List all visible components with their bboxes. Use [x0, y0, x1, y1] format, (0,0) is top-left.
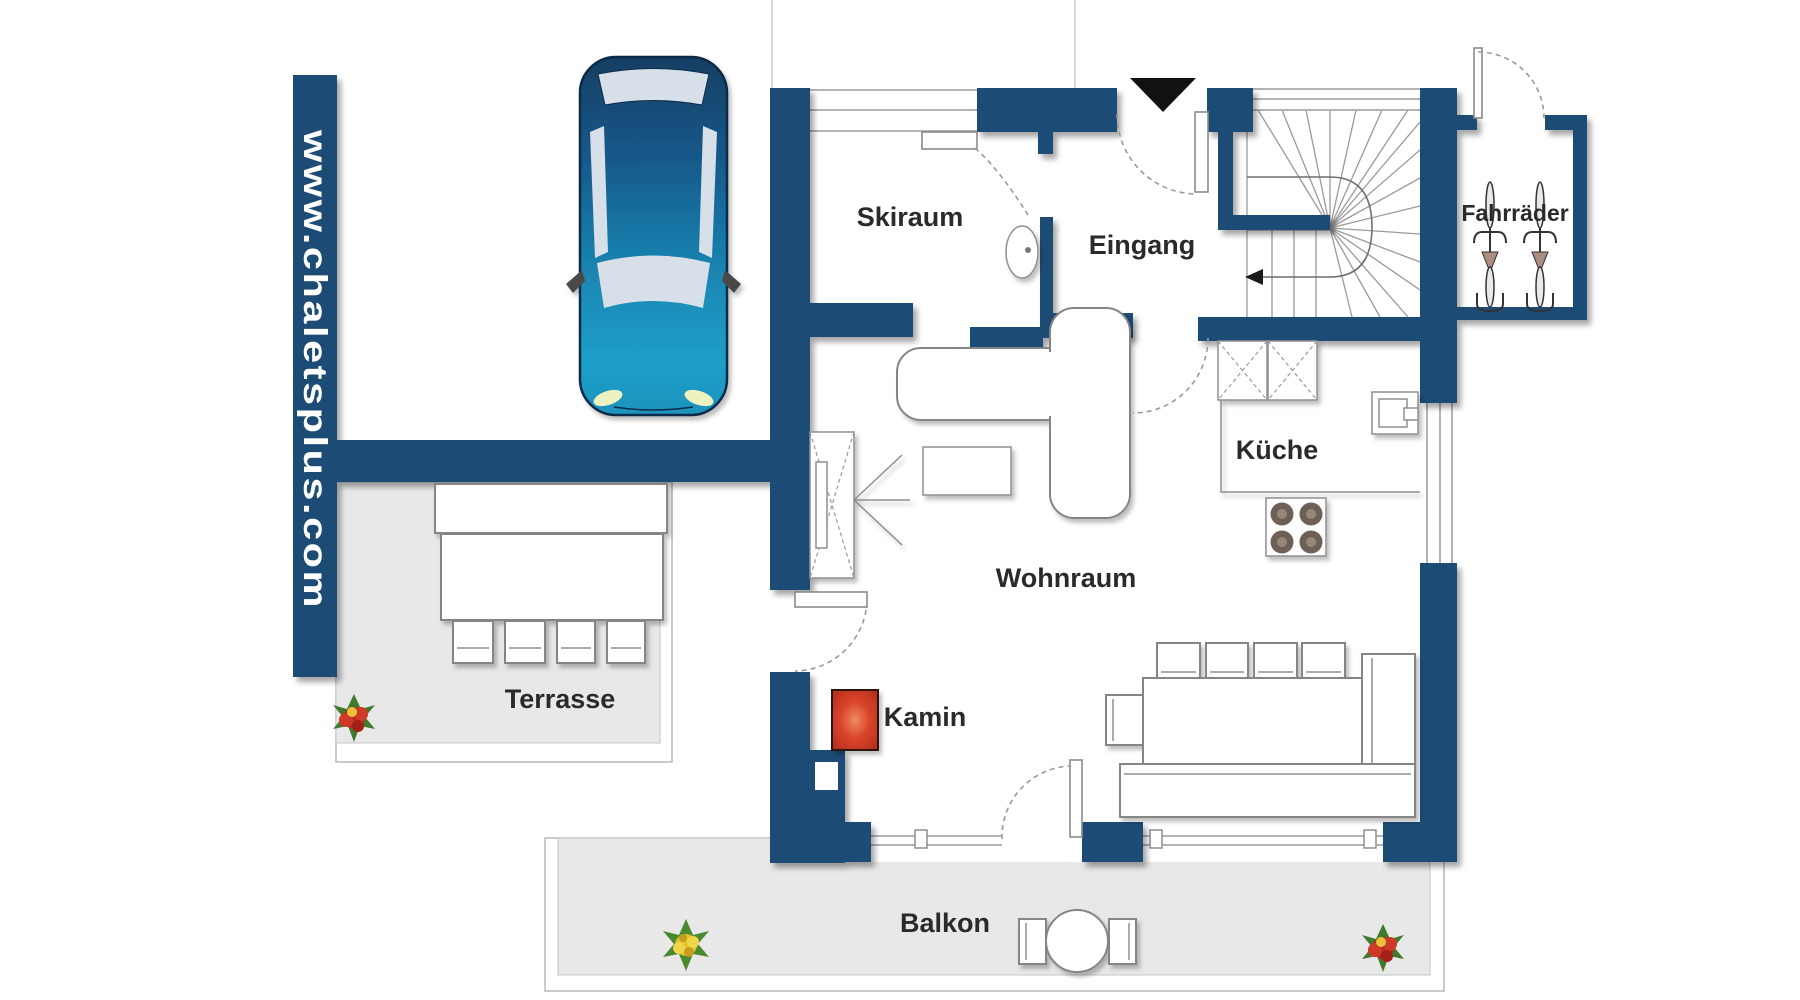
skiraum-door-leaf — [922, 132, 977, 149]
balcony-table — [1046, 910, 1108, 972]
wall-west-upper — [770, 88, 810, 590]
window-north-skiraum — [810, 88, 977, 132]
dining-chair — [1254, 643, 1297, 681]
terrace-chair — [557, 621, 595, 663]
floor-plan-canvas: Skiraum Eingang Küche Wohnraum Kamin Ter… — [0, 0, 1800, 1000]
window-east-kitchen — [1420, 403, 1457, 563]
wall-east-upper — [1420, 88, 1457, 403]
window-south-right — [1143, 824, 1383, 860]
dining-chair — [1206, 643, 1248, 681]
wall-east-lower — [1420, 563, 1457, 862]
wall-north-a — [977, 88, 1117, 132]
wall-bikeroom-south — [1457, 307, 1587, 320]
balcony-set — [1019, 910, 1136, 972]
room-label-kamin: Kamin — [884, 702, 967, 732]
terrace-chair — [607, 621, 645, 663]
terrace-bench — [435, 484, 667, 533]
room-label-wohnraum: Wohnraum — [996, 563, 1137, 593]
terrace-chair — [453, 621, 493, 663]
dining-chair — [1302, 643, 1345, 681]
kitchen-cabinets — [1218, 341, 1317, 400]
wall-niche — [815, 762, 838, 790]
wall-stairs-south — [1198, 317, 1457, 341]
balcony-chair — [1109, 919, 1136, 964]
wall-stair-inner-h — [1218, 215, 1330, 230]
kitchen-stove — [1266, 498, 1326, 556]
watermark-text: www.chaletsplus.com — [297, 129, 334, 610]
terrace-door-leaf — [795, 592, 867, 607]
entrance-door-leaf — [1195, 112, 1208, 192]
car-icon — [566, 57, 741, 415]
room-label-balkon: Balkon — [900, 908, 990, 938]
wall-skiraum-south — [807, 303, 913, 337]
window-north-stairs — [1253, 88, 1420, 111]
floor-plan: Skiraum Eingang Küche Wohnraum Kamin Ter… — [0, 0, 1800, 1000]
wall-north-stub — [1038, 132, 1053, 154]
balcony-door-leaf — [1070, 760, 1082, 837]
room-label-terrasse: Terrasse — [505, 684, 616, 714]
wall-south-a — [843, 822, 871, 862]
washbasin — [1006, 226, 1038, 278]
balcony-chair — [1019, 919, 1046, 964]
bikeroom-door-leaf — [1474, 48, 1482, 118]
dining-chair — [1106, 695, 1143, 745]
dining-table — [1143, 678, 1363, 768]
coffee-table — [923, 447, 1011, 495]
wall-west-lower — [770, 672, 810, 863]
room-label-fahrraeder: Fahrräder — [1461, 200, 1568, 226]
room-label-kueche: Küche — [1236, 435, 1319, 465]
kitchen-sink — [1372, 392, 1418, 434]
fireplace — [832, 690, 878, 750]
room-label-skiraum: Skiraum — [857, 202, 964, 232]
wall-bikeroom-east — [1573, 115, 1587, 320]
wall-garage-south — [293, 440, 810, 482]
dining-chair — [1157, 643, 1200, 681]
terrace-table — [441, 534, 663, 620]
balcony-door-threshold — [1002, 822, 1070, 862]
wall-south-corner — [1383, 822, 1457, 862]
terrace-chair — [505, 621, 545, 663]
bikeroom-door-arc — [1478, 52, 1544, 118]
wall-north-b — [1207, 88, 1253, 132]
room-label-eingang: Eingang — [1089, 230, 1196, 260]
window-south-left — [871, 824, 1002, 860]
wall-south-pillar — [1082, 822, 1143, 862]
